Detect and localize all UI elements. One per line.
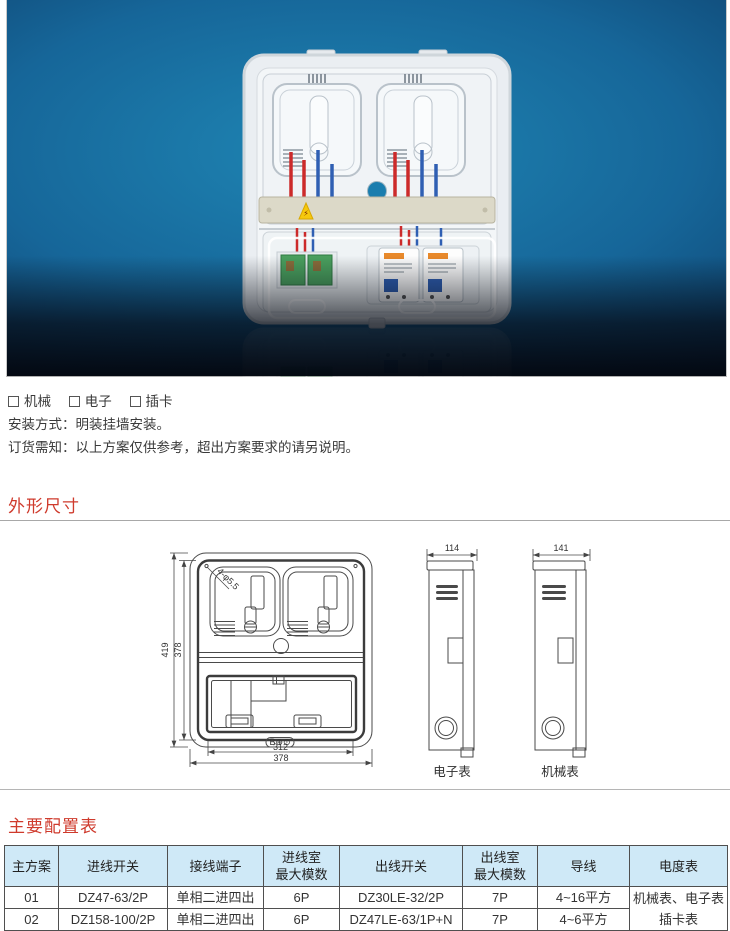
dim-front-width: 378 [273,753,288,763]
table-row: 01 DZ47-63/2P 单相二进四出 6P DZ30LE-32/2P 7P … [5,887,728,909]
cell-terminal: 单相二进四出 [168,887,264,909]
option-electronic[interactable]: 电子 [69,394,112,409]
catalog-page: ⚡ [0,0,730,930]
mounting-rail [259,197,495,223]
install-method-line: 安装方式：明装挂墙安装。 [8,413,359,436]
cell-out-modules: 7P [463,909,538,931]
cell-plan: 02 [5,909,59,931]
front-dimensions: 419 378 312 378 4-φ5.5 [160,553,372,767]
dim-front-height: 419 [160,642,170,657]
checkbox-icon[interactable] [8,396,19,407]
header-out-switch: 出线开关 [340,846,463,887]
header-in-modules: 进线室 最大模数 [264,846,340,887]
cell-meter-types: 机械表、电子表 插卡表 [630,887,728,931]
dimensions-section-title: 外形尺寸 [8,492,80,517]
section-divider [0,520,730,521]
order-note-line: 订货需知：以上方案仅供参考，超出方案要求的请另说明。 [8,436,359,459]
option-card[interactable]: 插卡 [130,394,173,409]
side-view-mechanical: 141 机械表 [533,543,590,779]
circuit-breakers [367,246,479,304]
dimension-drawing: B⊕⊙ 419 378 312 378 4-φ5.5 [0,535,730,785]
terminal-block [277,252,337,288]
option-label: 电子 [85,394,112,409]
cell-out-switch: DZ30LE-32/2P [340,887,463,909]
reflection [244,324,510,377]
header-in-switch: 进线开关 [59,846,168,887]
section-divider [0,789,730,790]
table-row: 02 DZ158-100/2P 单相二进四出 6P DZ47LE-63/1P+N… [5,909,728,931]
checkbox-icon[interactable] [130,396,141,407]
cell-out-switch: DZ47LE-63/1P+N [340,909,463,931]
cell-wire: 4~6平方 [538,909,630,931]
meter-box-photo-illustration: ⚡ [7,0,728,377]
dim-front-inner-height: 378 [173,642,183,657]
product-photo: ⚡ [6,0,727,377]
breaker-2 [423,248,463,302]
front-view: B⊕⊙ 419 378 312 378 4-φ5.5 [160,553,372,767]
cell-wire: 4~16平方 [538,887,630,909]
meter-type-row2: 插卡表 [630,909,727,930]
header-wire: 导线 [538,846,630,887]
header-out-modules: 出线室 最大模数 [463,846,538,887]
option-label: 插卡 [146,394,173,409]
product-notes: 机械 电子 插卡 安装方式：明装挂墙安装。 订货需知：以上方案仅供参考，超出方案… [8,390,359,459]
cell-out-modules: 7P [463,887,538,909]
dim-side-electronic-width: 114 [445,543,459,553]
meter-box: ⚡ [244,50,510,328]
lightning-icon: ⚡ [303,209,309,218]
dim-front-inner-width: 312 [273,742,288,752]
meter-type-row1: 机械表、电子表 [630,888,727,909]
header-terminal: 接线端子 [168,846,264,887]
cell-in-modules: 6P [264,909,340,931]
cell-in-switch: DZ158-100/2P [59,909,168,931]
option-label: 机械 [24,394,51,409]
cell-plan: 01 [5,887,59,909]
config-section-title: 主要配置表 [8,812,98,837]
cell-in-modules: 6P [264,887,340,909]
checkbox-icon[interactable] [69,396,80,407]
meter-type-options: 机械 电子 插卡 [8,390,359,413]
table-header-row: 主方案 进线开关 接线端子 进线室 最大模数 出线开关 出线室 最大模数 导线 … [5,846,728,887]
side-electronic-label: 电子表 [433,765,471,779]
header-plan: 主方案 [5,846,59,887]
cell-in-switch: DZ47-63/2P [59,887,168,909]
cell-terminal: 单相二进四出 [168,909,264,931]
side-mechanical-label: 机械表 [541,764,579,779]
dim-side-mechanical-width: 141 [553,543,568,553]
side-view-electronic: 114 电子表 [427,543,477,779]
option-mechanical[interactable]: 机械 [8,394,51,409]
breaker-1 [379,248,419,302]
config-table: 主方案 进线开关 接线端子 进线室 最大模数 出线开关 出线室 最大模数 导线 … [4,845,728,931]
header-meter: 电度表 [630,846,728,887]
